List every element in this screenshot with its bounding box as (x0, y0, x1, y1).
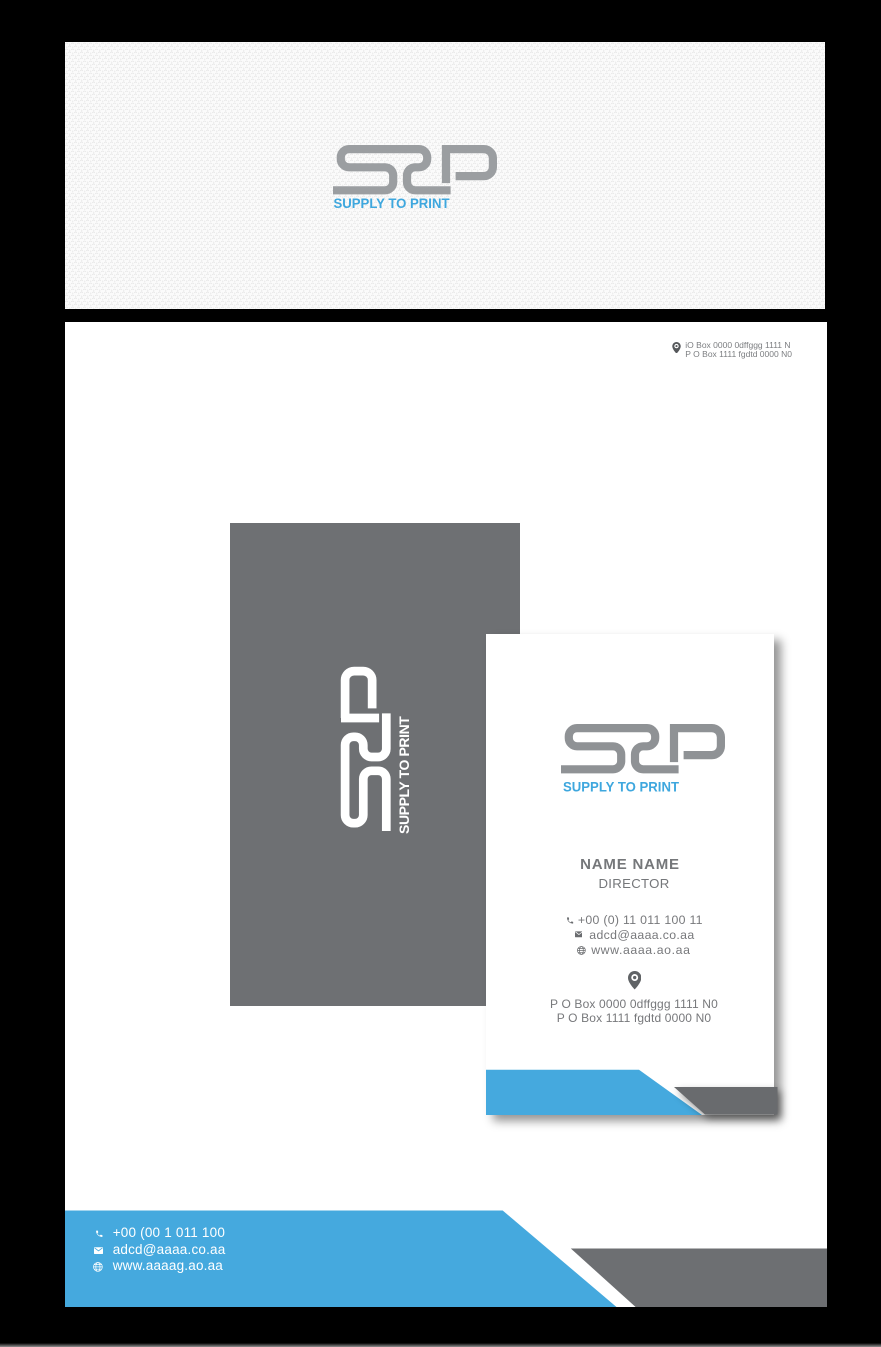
svg-text:SUPPLY TO PRINT: SUPPLY TO PRINT (333, 195, 449, 211)
svg-text:SUPPLY TO PRINT: SUPPLY TO PRINT (563, 778, 679, 794)
